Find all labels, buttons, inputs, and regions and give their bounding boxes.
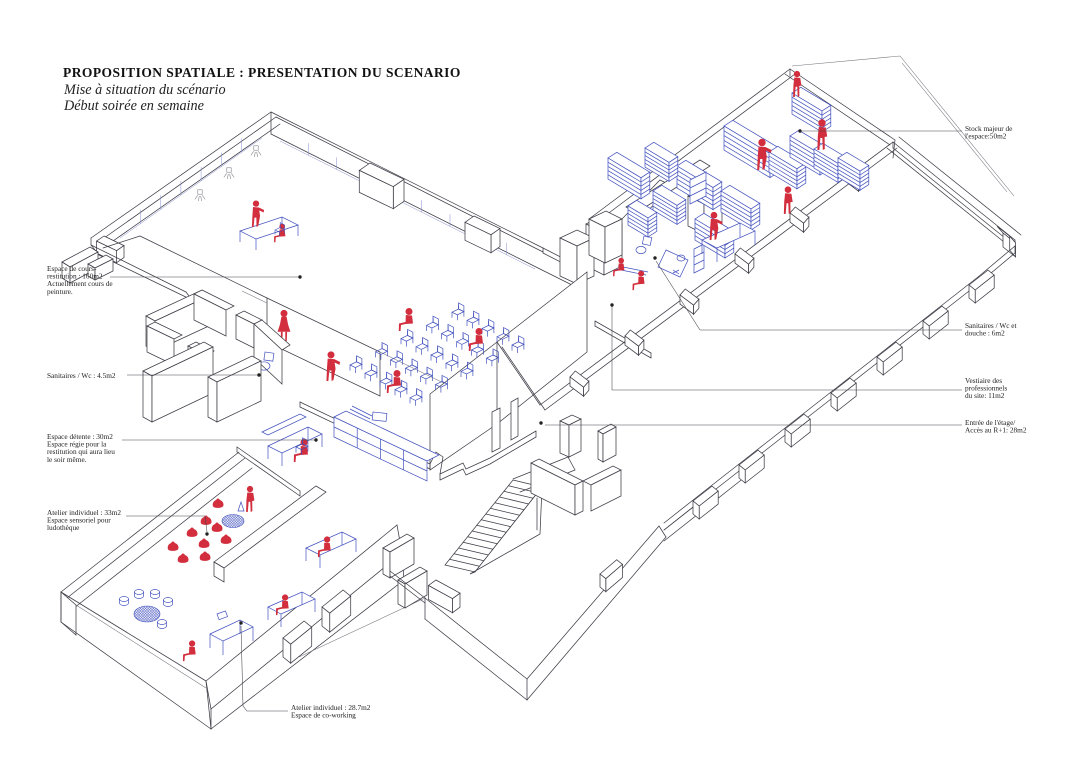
- svg-text:Vestiaire desprofessionnelsdu: Vestiaire desprofessionnelsdu site: 11m2: [965, 376, 1007, 400]
- svg-text:Sanitaires / Wc : 4.5m2: Sanitaires / Wc : 4.5m2: [47, 371, 116, 380]
- svg-text:Mise à situation du scénario: Mise à situation du scénario: [63, 82, 226, 98]
- svg-text:PROPOSITION SPATIALE : PRESENT: PROPOSITION SPATIALE : PRESENTATION DU S…: [63, 65, 461, 80]
- svg-text:Stock majeur del'espace:50m2: Stock majeur del'espace:50m2: [965, 124, 1012, 141]
- svg-text:Début soirée en semaine: Début soirée en semaine: [63, 98, 204, 114]
